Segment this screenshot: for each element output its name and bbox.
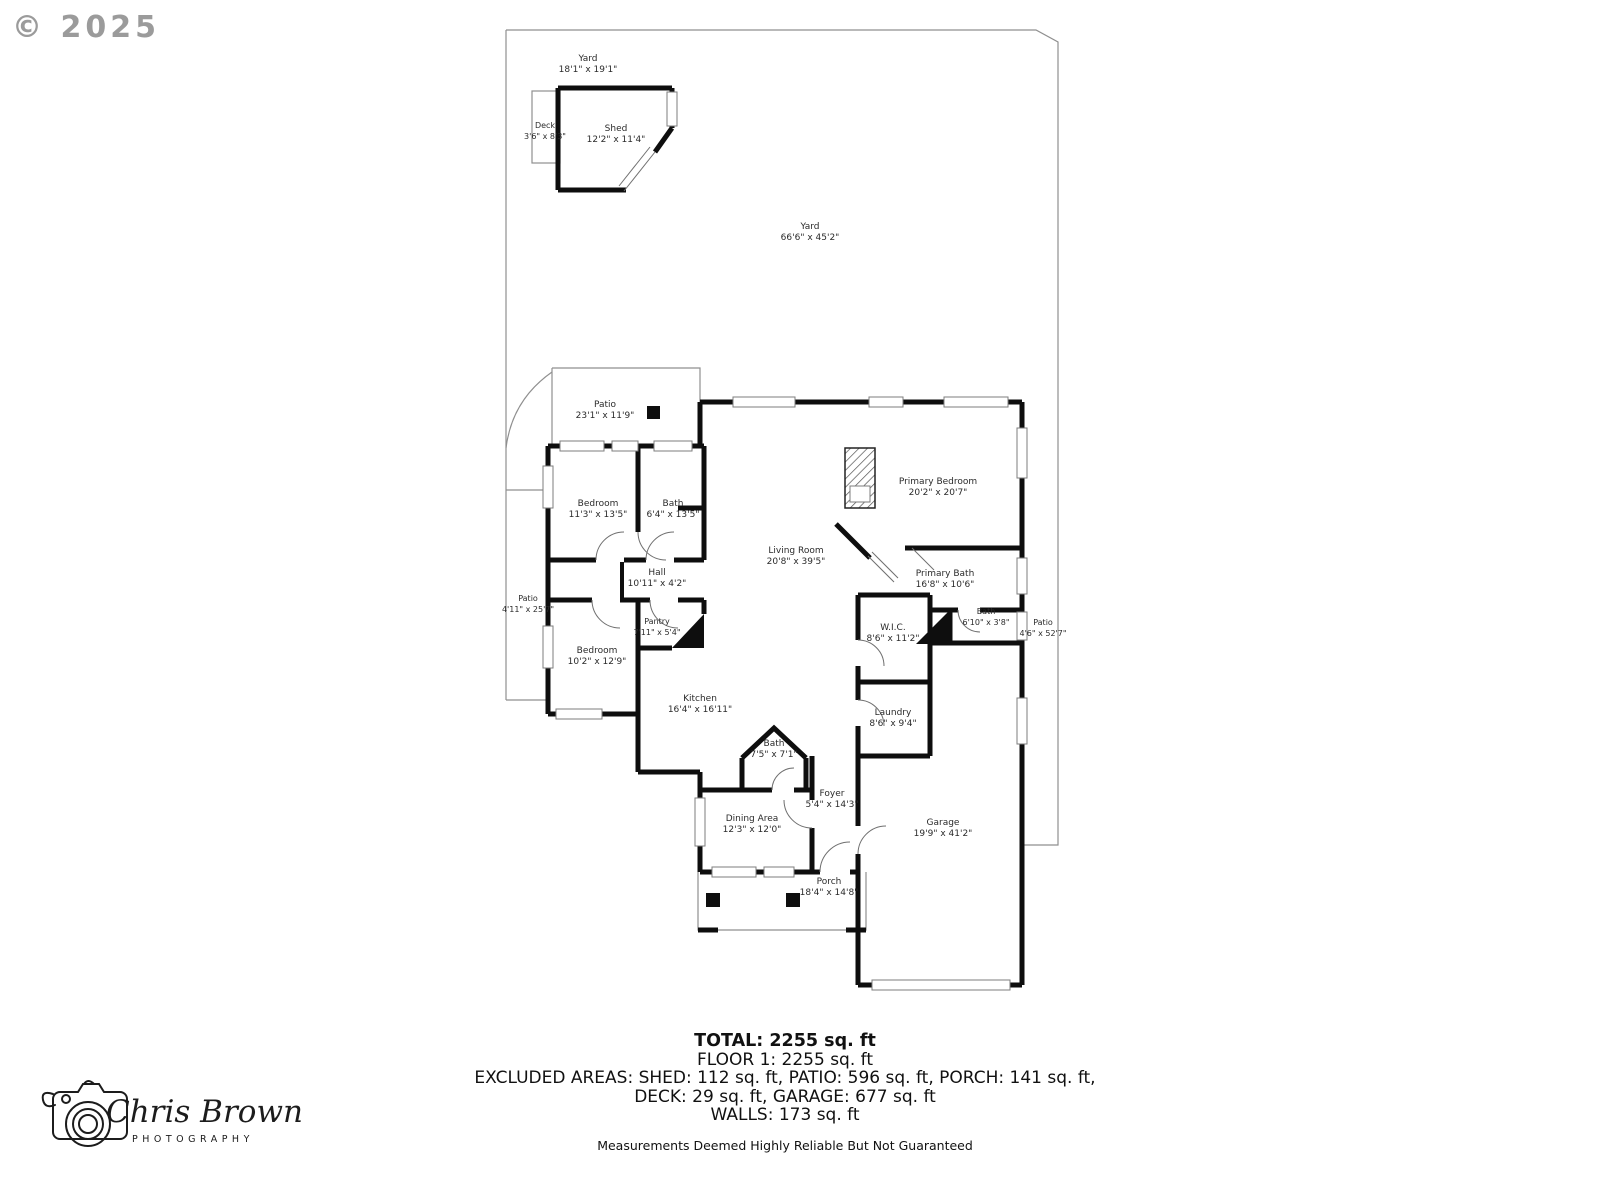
total-area-line: TOTAL: 2255 sq. ft (300, 1032, 1270, 1051)
svg-text:20'8" x 39'5": 20'8" x 39'5" (767, 557, 826, 567)
svg-text:18'1" x 19'1": 18'1" x 19'1" (559, 65, 618, 75)
svg-text:10'2" x 12'9": 10'2" x 12'9" (568, 657, 627, 667)
svg-text:23'1" x 11'9": 23'1" x 11'9" (576, 411, 635, 421)
logo-name: Chris Brown (106, 1094, 303, 1130)
label-patio-top: Patio (594, 400, 617, 410)
svg-text:16'8" x 10'6": 16'8" x 10'6" (916, 580, 975, 590)
posts (647, 406, 866, 930)
patio-post (647, 406, 660, 419)
label-porch: Porch (817, 877, 842, 887)
svg-text:6'4" x 13'5": 6'4" x 13'5" (647, 510, 700, 520)
label-yard-main: Yard (799, 222, 819, 232)
label-kitchen: Kitchen (683, 694, 717, 704)
shed-door-leaf (624, 152, 655, 191)
area-summary: TOTAL: 2255 sq. ft FLOOR 1: 2255 sq. ft … (300, 1032, 1270, 1155)
label-deck: Deck (535, 121, 555, 130)
svg-text:10'11" x 4'2": 10'11" x 4'2" (628, 579, 687, 589)
disclaimer-line: Measurements Deemed Highly Reliable But … (300, 1137, 1270, 1156)
label-primary-bath: Primary Bath (916, 569, 975, 579)
svg-text:4'6" x 52'7": 4'6" x 52'7" (1019, 629, 1066, 638)
photographer-logo: Chris Brown PHOTOGRAPHY (40, 1052, 330, 1162)
label-bedroom1: Bedroom (578, 499, 619, 509)
excluded-areas-line2: DECK: 29 sq. ft, GARAGE: 677 sq. ft (300, 1088, 1270, 1107)
svg-text:6'10" x 3'8": 6'10" x 3'8" (962, 618, 1009, 627)
label-wic: W.I.C. (880, 623, 905, 633)
svg-text:11'3" x 13'5": 11'3" x 13'5" (569, 510, 628, 520)
fireplace-firebox (850, 486, 870, 502)
svg-text:18'4" x 14'8": 18'4" x 14'8" (800, 888, 859, 898)
svg-text:7'11" x 5'4": 7'11" x 5'4" (633, 628, 680, 637)
garage-door (872, 980, 1010, 990)
label-primary-bedroom: Primary Bedroom (899, 477, 977, 487)
svg-text:12'2" x 11'4": 12'2" x 11'4" (587, 135, 646, 145)
svg-text:19'9" x 41'2": 19'9" x 41'2" (914, 829, 973, 839)
svg-text:12'3" x 12'0": 12'3" x 12'0" (723, 825, 782, 835)
label-yard-upper: Yard (577, 54, 597, 64)
floorplan-page: © 2025 (0, 0, 1600, 1200)
walls-area-line: WALLS: 173 sq. ft (300, 1106, 1270, 1125)
svg-text:66'6" x 45'2": 66'6" x 45'2" (781, 233, 840, 243)
label-dining: Dining Area (726, 814, 779, 824)
svg-text:20'2" x 20'7": 20'2" x 20'7" (909, 488, 968, 498)
floorplan-drawing: Yard 18'1" x 19'1" Deck 3'6" x 8'3" Shed… (0, 0, 1600, 1200)
svg-text:16'4" x 16'11": 16'4" x 16'11" (668, 705, 732, 715)
room-labels: Yard 18'1" x 19'1" Deck 3'6" x 8'3" Shed… (502, 54, 1067, 898)
shed-window (667, 92, 677, 126)
svg-text:5'4" x 14'3": 5'4" x 14'3" (806, 800, 859, 810)
primary-door-leaf (868, 556, 894, 582)
label-shed: Shed (605, 124, 628, 134)
svg-text:4'11" x 25'7": 4'11" x 25'7" (502, 605, 554, 614)
svg-text:8'6" x 11'2": 8'6" x 11'2" (867, 634, 920, 644)
label-foyer: Foyer (820, 789, 845, 799)
label-laundry: Laundry (875, 708, 912, 718)
svg-text:3'6" x 8'3": 3'6" x 8'3" (524, 132, 566, 141)
svg-text:7'5" x 7'1": 7'5" x 7'1" (750, 750, 797, 760)
label-garage: Garage (927, 818, 960, 828)
label-bath-hall: Bath (764, 739, 785, 749)
porch-post (786, 893, 800, 907)
primary-bath-door-leaf (912, 548, 934, 570)
label-bath-small: Bath (977, 607, 996, 616)
label-pantry: Pantry (644, 617, 670, 626)
porch-post (706, 893, 720, 907)
floor1-area-line: FLOOR 1: 2255 sq. ft (300, 1051, 1270, 1070)
label-hall: Hall (648, 568, 665, 578)
excluded-areas-line1: EXCLUDED AREAS: SHED: 112 sq. ft, PATIO:… (300, 1069, 1270, 1088)
living-diagonal-wall (836, 524, 870, 558)
label-patio-left: Patio (518, 594, 538, 603)
label-patio-right: Patio (1033, 618, 1053, 627)
label-living: Living Room (768, 546, 823, 556)
svg-text:8'6" x 9'4": 8'6" x 9'4" (869, 719, 916, 729)
logo-subtitle: PHOTOGRAPHY (132, 1134, 254, 1145)
label-bedroom2: Bedroom (577, 646, 618, 656)
label-bath1: Bath (663, 499, 684, 509)
